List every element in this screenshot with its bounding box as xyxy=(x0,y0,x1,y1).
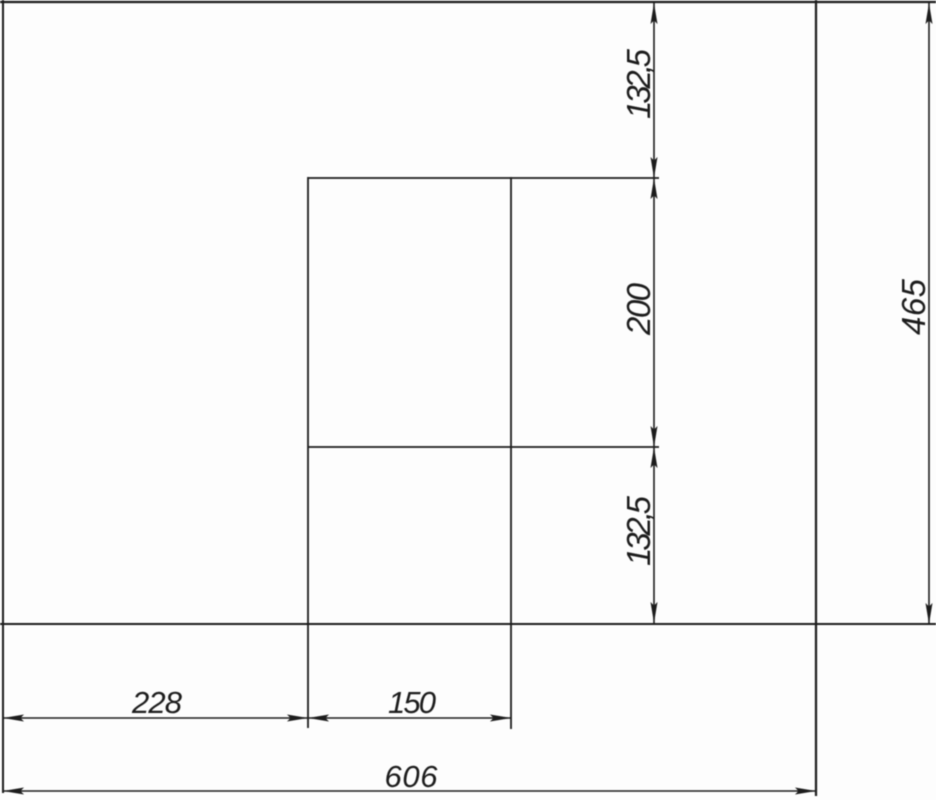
svg-text:465: 465 xyxy=(895,278,932,335)
svg-text:132,5: 132,5 xyxy=(620,48,657,119)
svg-text:606: 606 xyxy=(385,759,439,794)
svg-text:132,5: 132,5 xyxy=(620,495,657,566)
svg-text:228: 228 xyxy=(131,685,183,720)
svg-text:150: 150 xyxy=(388,685,436,720)
svg-text:200: 200 xyxy=(620,282,657,336)
